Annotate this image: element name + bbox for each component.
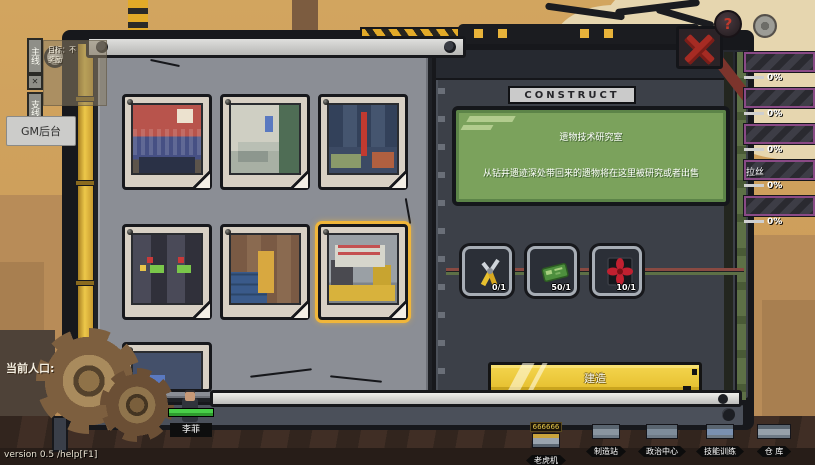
screw-icon — [323, 99, 329, 105]
building-label: 仓 库 — [757, 446, 792, 457]
build-button-label: 建造 — [584, 372, 606, 385]
quest-reward-text: 奖励 — [48, 55, 62, 65]
game-screen: CONSTRUCT 遗物技术研究室 从钻井遗迹深处带回来的遗物将在这里被研究或者… — [0, 0, 815, 465]
building-label: 制造站 — [586, 446, 626, 457]
bar-fill — [744, 88, 815, 108]
corner-fold — [291, 171, 308, 188]
bar-label: 拉丝 — [746, 165, 764, 178]
production-bar-5: 0% — [744, 196, 815, 227]
population-label: 当前人口: — [6, 360, 54, 376]
cost-amount: 50/1 — [551, 283, 571, 292]
building-preview-image — [327, 233, 399, 305]
building-thumbnail-1[interactable] — [122, 94, 212, 190]
window-top-bar — [86, 36, 466, 58]
pipe-hazard-dash — [580, 29, 589, 38]
settings-icon[interactable] — [753, 14, 777, 38]
cost-item-fan: 10/1 — [592, 246, 642, 296]
building-skill-training[interactable]: 技能训练 — [690, 424, 750, 458]
building-manufacturing-station[interactable]: 制造站 — [576, 424, 636, 458]
character-head — [185, 392, 195, 401]
building-thumbnail-3[interactable] — [318, 94, 408, 190]
bar-percent: 0% — [744, 109, 815, 119]
quest-collapse-icon[interactable]: ✕ — [27, 74, 43, 90]
rivet-column — [438, 88, 445, 386]
streak-decor — [466, 116, 515, 122]
screw-icon — [127, 99, 133, 105]
slot-machine-icon — [532, 433, 560, 448]
production-bar-1: 0% — [744, 52, 815, 83]
building-thumbnail-6-selected[interactable] — [318, 224, 408, 320]
building-thumbnail-4[interactable] — [122, 224, 212, 320]
pipe-hazard-dash — [604, 29, 613, 38]
building-preview-image — [327, 103, 399, 175]
manufacturing-station-icon — [592, 424, 620, 439]
building-description: 从钻井遗迹深处带回来的遗物将在这里被研究或者出售 — [456, 166, 726, 179]
building-name: 遗物技术研究室 — [456, 130, 726, 143]
corner-fold — [193, 171, 210, 188]
corner-fold — [193, 301, 210, 318]
construct-header: CONSTRUCT — [508, 86, 636, 104]
version-text: version 0.5 /help[F1] — [4, 450, 97, 460]
bar-fill — [744, 196, 815, 216]
button-chip-decor — [692, 369, 697, 375]
help-icon[interactable]: ? — [714, 10, 742, 38]
bar-fill — [744, 124, 815, 144]
screw-icon — [225, 229, 231, 235]
cost-amount: 0/1 — [492, 283, 506, 292]
top-pipe-decor — [458, 24, 700, 44]
production-bar-2: 0% — [744, 88, 815, 119]
bar-percent: 0% — [744, 145, 815, 155]
chimney-silhouette — [128, 0, 148, 30]
bar-percent: 0% — [744, 181, 815, 191]
slot-machine-badge: 666666 — [530, 422, 563, 432]
political-center-icon — [646, 424, 678, 439]
screw-icon — [323, 229, 329, 235]
cost-item-pliers: 0/1 — [462, 246, 512, 296]
quest-objective-text: 目标：不 — [48, 45, 76, 55]
bolt — [718, 394, 728, 404]
building-preview-image — [131, 103, 203, 175]
panel-bottom-edge — [210, 390, 742, 407]
pipe-hazard-dash — [498, 29, 507, 38]
building-political-center[interactable]: 政治中心 — [632, 424, 692, 458]
building-label: 老虎机 — [526, 455, 566, 465]
skill-training-icon — [706, 424, 734, 439]
production-bar-4: 拉丝 0% — [744, 160, 815, 191]
cost-item-circuit-board: 50/1 — [527, 246, 577, 296]
production-bar-3: 0% — [744, 124, 815, 155]
hp-fill — [169, 409, 213, 416]
building-preview-image — [229, 233, 301, 305]
pipe-band — [76, 280, 95, 286]
dark-pipe-decor — [724, 52, 733, 400]
bar-percent: 0% — [744, 73, 815, 83]
bar-fill — [744, 52, 815, 72]
building-label: 技能训练 — [696, 446, 744, 457]
screw-icon — [225, 99, 231, 105]
building-slot-machine[interactable]: 666666 老虎机 — [516, 414, 576, 465]
bolt — [722, 408, 735, 421]
building-label: 政治中心 — [638, 446, 686, 457]
bar-percent: 0% — [744, 217, 815, 227]
building-warehouse[interactable]: 仓 库 — [744, 424, 804, 458]
tab-main-quest[interactable]: 主线 — [27, 38, 43, 74]
pipe-band — [76, 180, 95, 186]
gear-decor-small — [100, 368, 174, 442]
corner-fold — [389, 171, 406, 188]
gm-backend-button[interactable]: GM后台 — [6, 116, 76, 146]
character-name-label: 李菲 — [170, 423, 212, 437]
building-preview-image — [131, 233, 203, 305]
screw-icon — [127, 229, 133, 235]
pipe-hazard-dash — [474, 29, 483, 38]
warehouse-icon — [757, 424, 791, 439]
building-thumbnail-5[interactable] — [220, 224, 310, 320]
building-thumbnail-2[interactable] — [220, 94, 310, 190]
quest-panel: 目标：不 奖励 — [43, 40, 107, 106]
character-hp-bar — [168, 408, 214, 417]
bolt — [444, 41, 456, 53]
building-info-box: 遗物技术研究室 从钻井遗迹深处带回来的遗物将在这里被研究或者出售 — [452, 106, 730, 206]
corner-fold — [291, 301, 308, 318]
corner-fold — [389, 301, 406, 318]
building-preview-image — [229, 103, 301, 175]
cost-amount: 10/1 — [616, 283, 636, 292]
